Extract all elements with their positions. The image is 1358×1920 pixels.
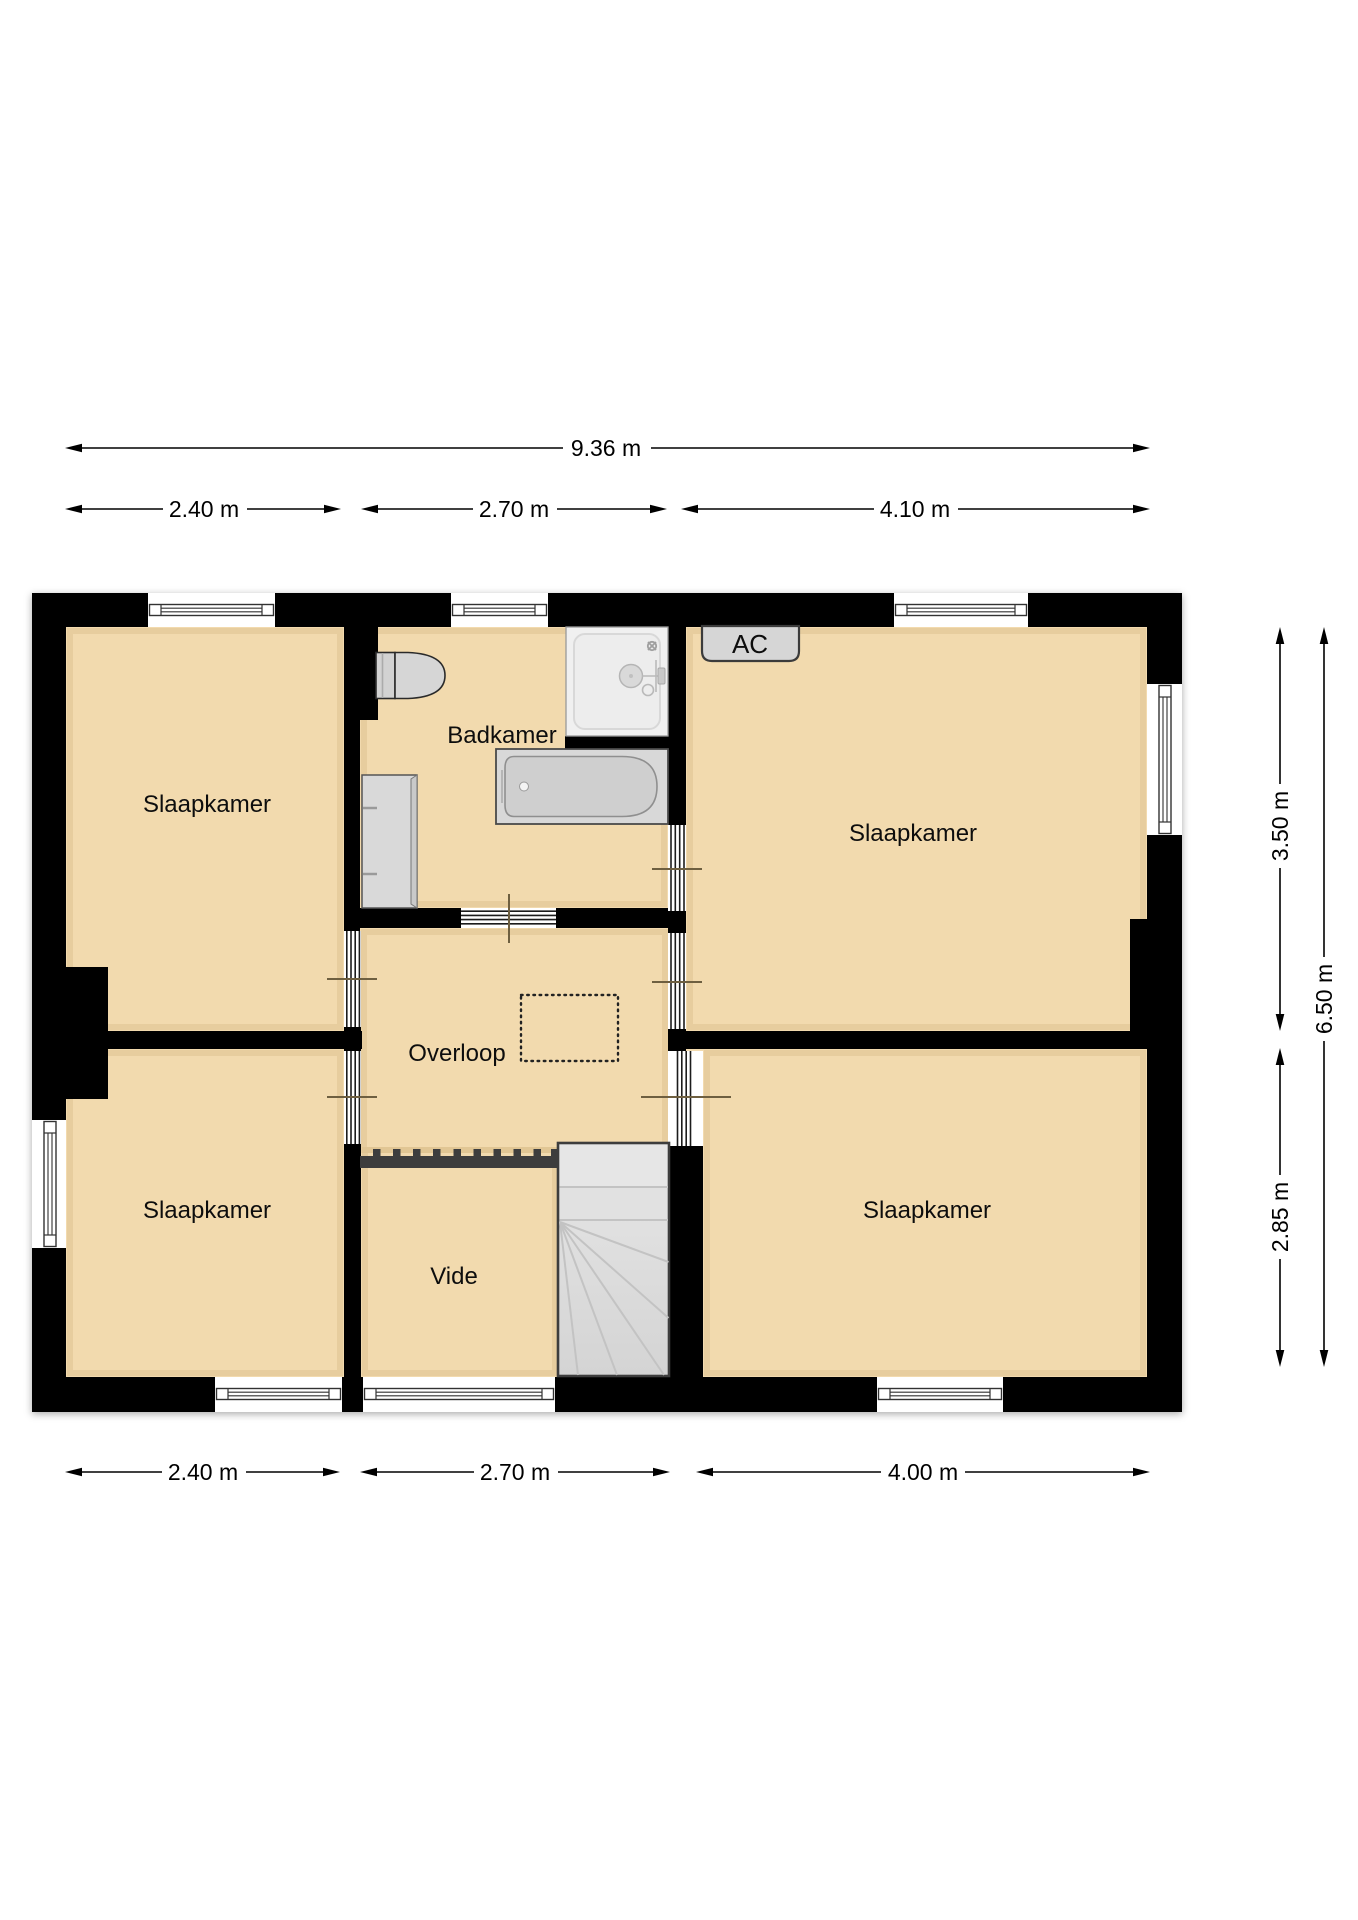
svg-text:6.50 m: 6.50 m xyxy=(1311,964,1337,1034)
svg-text:Vide: Vide xyxy=(430,1263,478,1290)
svg-text:9.36 m: 9.36 m xyxy=(571,435,641,461)
svg-text:3.50 m: 3.50 m xyxy=(1267,791,1293,861)
svg-text:2.85 m: 2.85 m xyxy=(1267,1182,1293,1252)
svg-text:AC: AC xyxy=(732,629,768,659)
svg-text:4.10 m: 4.10 m xyxy=(880,496,950,522)
svg-text:2.70 m: 2.70 m xyxy=(480,1459,550,1485)
svg-text:Slaapkamer: Slaapkamer xyxy=(143,1197,271,1224)
svg-text:Badkamer: Badkamer xyxy=(447,722,556,749)
svg-text:Overloop: Overloop xyxy=(408,1040,505,1067)
svg-text:2.40 m: 2.40 m xyxy=(168,1459,238,1485)
svg-text:2.40 m: 2.40 m xyxy=(169,496,239,522)
svg-text:2.70 m: 2.70 m xyxy=(479,496,549,522)
svg-text:Slaapkamer: Slaapkamer xyxy=(143,791,271,818)
svg-text:4.00 m: 4.00 m xyxy=(888,1459,958,1485)
svg-text:Slaapkamer: Slaapkamer xyxy=(863,1197,991,1224)
svg-text:Slaapkamer: Slaapkamer xyxy=(849,820,977,847)
